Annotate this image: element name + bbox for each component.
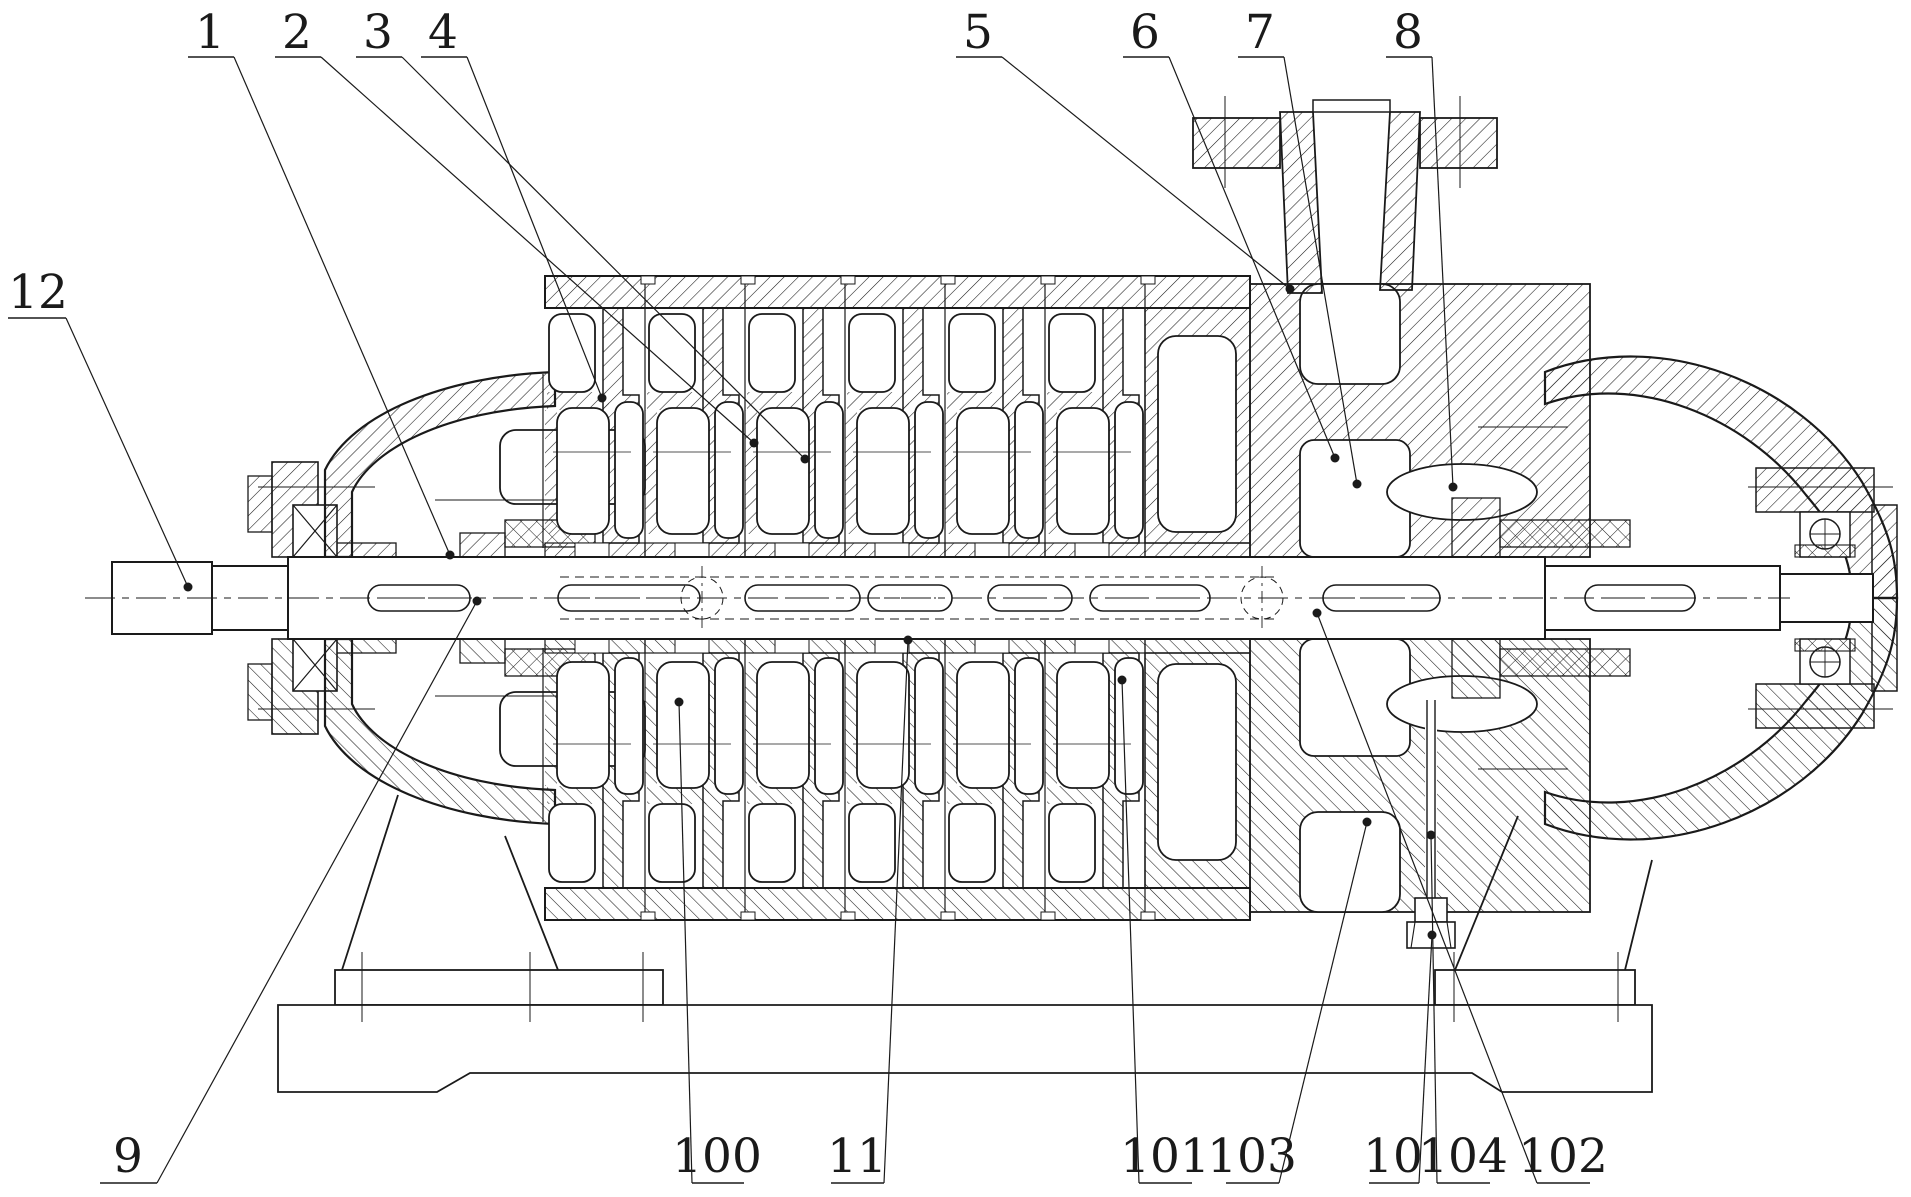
leader-dot bbox=[1428, 931, 1437, 940]
ref-number: 4 bbox=[428, 5, 458, 60]
left-foot-pad bbox=[335, 970, 663, 1005]
leader-dot bbox=[1353, 480, 1362, 489]
leader-dot bbox=[801, 455, 810, 464]
leader-dot bbox=[1313, 609, 1322, 618]
leader-dot bbox=[750, 439, 759, 448]
leader-dot bbox=[598, 394, 607, 403]
ref-number: 102 bbox=[1518, 1129, 1608, 1184]
leader-dot bbox=[1331, 454, 1340, 463]
leader-dot bbox=[1363, 818, 1372, 827]
ref-number: 6 bbox=[1130, 5, 1160, 60]
leader-dot bbox=[1286, 285, 1295, 294]
leader-dot bbox=[184, 583, 193, 592]
drawing-sheet: 123456781291001110110310104102 bbox=[0, 0, 1911, 1197]
ref-number: 2 bbox=[282, 5, 312, 60]
ref-number: 10 bbox=[1363, 1129, 1423, 1184]
leader-dot bbox=[675, 698, 684, 707]
ref-number: 8 bbox=[1393, 5, 1423, 60]
ref-number: 104 bbox=[1418, 1129, 1508, 1184]
ref-number: 101 bbox=[1120, 1129, 1210, 1184]
leader-dot bbox=[473, 597, 482, 606]
ref-number: 12 bbox=[8, 265, 68, 320]
ref-number: 5 bbox=[963, 5, 993, 60]
ref-number: 3 bbox=[363, 5, 393, 60]
shaft-end bbox=[1780, 574, 1873, 622]
ref-number: 11 bbox=[827, 1129, 887, 1184]
pump-sectional-drawing: 123456781291001110110310104102 bbox=[0, 0, 1911, 1197]
ref-number: 1 bbox=[195, 5, 225, 60]
ref-number: 103 bbox=[1207, 1129, 1297, 1184]
ref-number: 9 bbox=[113, 1129, 143, 1184]
leader-dot bbox=[904, 636, 913, 645]
leader-dot bbox=[1449, 483, 1458, 492]
ref-number: 100 bbox=[672, 1129, 762, 1184]
ref-number: 7 bbox=[1245, 5, 1275, 60]
leader-dot bbox=[1427, 831, 1436, 840]
right-foot-pad bbox=[1435, 970, 1635, 1005]
leader-dot bbox=[446, 551, 455, 560]
leader-dot bbox=[1118, 676, 1127, 685]
